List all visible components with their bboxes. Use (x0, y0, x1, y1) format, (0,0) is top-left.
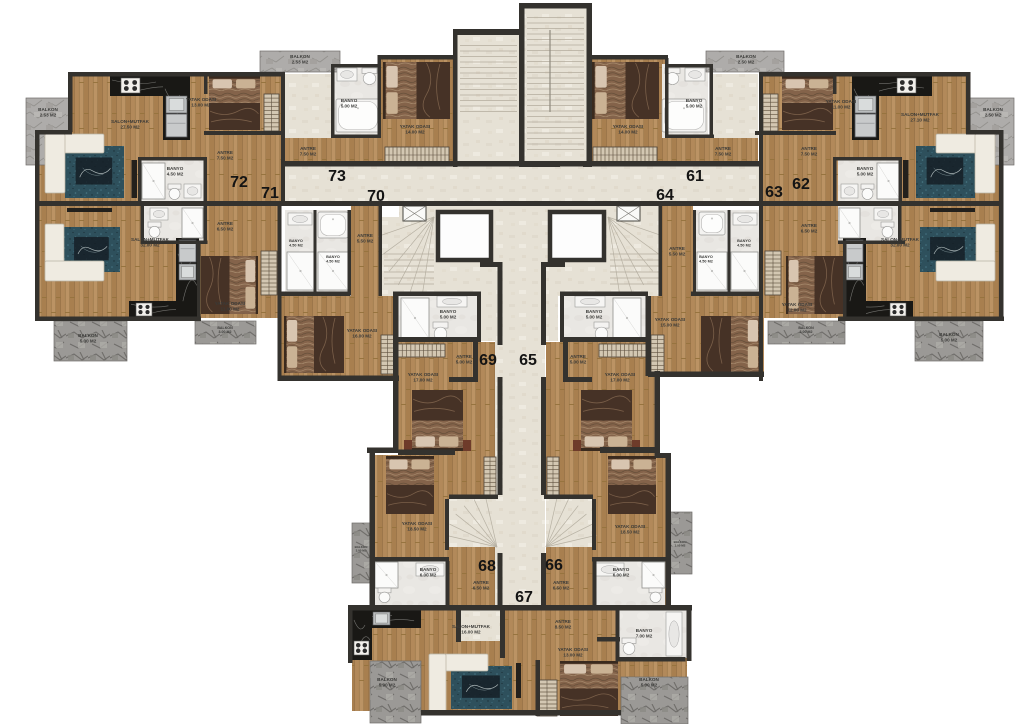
svg-text:YATAK ODASI: YATAK ODASI (826, 99, 857, 104)
svg-text:ANTRE: ANTRE (553, 580, 569, 585)
svg-text:BALKON: BALKON (78, 333, 98, 338)
svg-text:BANYO: BANYO (440, 309, 457, 314)
svg-text:32.00 M2: 32.00 M2 (890, 242, 910, 247)
svg-text:3.00 M2: 3.00 M2 (675, 544, 686, 548)
svg-text:73: 73 (328, 168, 346, 185)
svg-text:ANTRE: ANTRE (669, 246, 685, 251)
svg-text:YATAK ODASI: YATAK ODASI (558, 647, 589, 652)
svg-text:BANYO: BANYO (289, 239, 303, 243)
svg-text:27.10 M2: 27.10 M2 (910, 117, 930, 122)
svg-text:BANYO: BANYO (686, 98, 703, 103)
svg-text:BANYO: BANYO (737, 239, 751, 243)
svg-text:YATAK ODASI: YATAK ODASI (408, 372, 439, 377)
svg-text:4.50 M2: 4.50 M2 (699, 259, 713, 263)
svg-text:17.00 M2: 17.00 M2 (610, 377, 630, 382)
svg-text:YATAK ODASI: YATAK ODASI (655, 317, 686, 322)
svg-text:5.00 M2: 5.00 M2 (341, 103, 358, 108)
svg-text:BANYO: BANYO (857, 166, 874, 171)
svg-text:5.00 M2: 5.00 M2 (686, 103, 703, 108)
svg-text:BANYO: BANYO (420, 567, 437, 572)
svg-text:4.50 M2: 4.50 M2 (289, 243, 303, 247)
svg-text:11.00 M2: 11.00 M2 (832, 104, 851, 109)
svg-text:BANYO: BANYO (613, 567, 630, 572)
svg-text:2.53 M2: 2.53 M2 (292, 59, 309, 64)
svg-text:5.00 M2: 5.00 M2 (440, 314, 457, 319)
svg-text:ANTRE: ANTRE (801, 223, 817, 228)
svg-text:YATAK ODASI: YATAK ODASI (605, 372, 636, 377)
svg-text:5.00 M2: 5.00 M2 (456, 359, 473, 364)
svg-text:27.50 M2: 27.50 M2 (120, 124, 140, 129)
svg-text:16.00 M2: 16.00 M2 (352, 333, 372, 338)
svg-text:SALON+MUTFAK: SALON+MUTFAK (111, 119, 150, 124)
svg-text:ANTRE: ANTRE (300, 146, 316, 151)
svg-text:5.90 M2: 5.90 M2 (379, 682, 396, 687)
svg-text:BANYO: BANYO (167, 166, 184, 171)
svg-text:7.50 M2: 7.50 M2 (801, 151, 818, 156)
svg-text:68: 68 (478, 558, 496, 575)
svg-text:13.00 M2: 13.00 M2 (191, 102, 211, 107)
svg-text:SALON+MUTFAK: SALON+MUTFAK (131, 237, 170, 242)
svg-text:BANYO: BANYO (586, 309, 603, 314)
svg-text:ANTRE: ANTRE (473, 580, 489, 585)
svg-text:64: 64 (656, 187, 674, 204)
svg-text:13.00 M2: 13.00 M2 (563, 652, 583, 657)
svg-text:BALKON: BALKON (983, 107, 1003, 112)
svg-text:YATAK ODASI: YATAK ODASI (347, 328, 378, 333)
svg-text:5.50 M2: 5.50 M2 (357, 238, 374, 243)
svg-text:BALKON: BALKON (377, 677, 397, 682)
svg-text:18.50 M2: 18.50 M2 (407, 526, 427, 531)
svg-text:BALKON: BALKON (736, 54, 756, 59)
svg-text:69: 69 (479, 352, 497, 369)
svg-text:70: 70 (367, 188, 385, 205)
svg-text:ANTRE: ANTRE (570, 354, 586, 359)
svg-text:YATAK ODASI: YATAK ODASI (402, 521, 433, 526)
svg-text:5.50 M2: 5.50 M2 (669, 251, 686, 256)
svg-text:BALKON: BALKON (639, 677, 659, 682)
svg-text:6.50 M2: 6.50 M2 (553, 585, 570, 590)
svg-text:5.00 M2: 5.00 M2 (570, 359, 587, 364)
svg-text:ANTRE: ANTRE (555, 619, 571, 624)
svg-text:62: 62 (792, 176, 810, 193)
svg-text:BALKON: BALKON (38, 107, 58, 112)
svg-text:ANTRE: ANTRE (715, 146, 731, 151)
svg-text:6.50 M2: 6.50 M2 (801, 228, 818, 233)
svg-text:4.50 M2: 4.50 M2 (326, 259, 340, 263)
svg-text:15.00 M2: 15.00 M2 (660, 322, 680, 327)
svg-text:YATAK ODASI: YATAK ODASI (186, 97, 217, 102)
svg-text:8.50 M2: 8.50 M2 (555, 624, 572, 629)
svg-text:YATAK ODASI: YATAK ODASI (215, 301, 246, 306)
svg-text:SALON+MUTFAK: SALON+MUTFAK (901, 112, 940, 117)
svg-text:BALKON: BALKON (290, 54, 310, 59)
svg-text:6.00 M2: 6.00 M2 (420, 572, 437, 577)
svg-text:16.00 M2: 16.00 M2 (461, 629, 481, 634)
svg-text:ANTRE: ANTRE (456, 354, 472, 359)
svg-text:63: 63 (765, 184, 783, 201)
svg-text:18.50 M2: 18.50 M2 (620, 529, 640, 534)
svg-text:YATAK ODASI: YATAK ODASI (613, 124, 644, 129)
svg-text:SALON+MUTFAK: SALON+MUTFAK (881, 237, 920, 242)
svg-text:ANTRE: ANTRE (357, 233, 373, 238)
svg-text:ANTRE: ANTRE (217, 221, 233, 226)
svg-text:66: 66 (545, 557, 563, 574)
svg-text:SALON+MUTFAK: SALON+MUTFAK (452, 624, 491, 629)
svg-text:7.50 M2: 7.50 M2 (217, 155, 234, 160)
svg-text:7.50 M2: 7.50 M2 (300, 151, 317, 156)
svg-text:6.50 M2: 6.50 M2 (473, 585, 490, 590)
svg-text:YATAK ODASI: YATAK ODASI (615, 524, 646, 529)
svg-text:ANTRE: ANTRE (801, 146, 817, 151)
svg-text:BANYO: BANYO (326, 255, 340, 259)
svg-text:17.00 M2: 17.00 M2 (413, 377, 433, 382)
svg-text:3.00 M2: 3.00 M2 (219, 330, 232, 334)
svg-text:72: 72 (230, 174, 248, 191)
svg-text:2.50 M2: 2.50 M2 (985, 112, 1002, 117)
svg-text:ANTRE: ANTRE (217, 150, 233, 155)
svg-text:BALKON: BALKON (939, 332, 959, 337)
svg-text:YATAK ODASI: YATAK ODASI (400, 124, 431, 129)
svg-text:7.00 M2: 7.00 M2 (636, 633, 653, 638)
svg-text:YATAK ODASI: YATAK ODASI (782, 302, 813, 307)
svg-text:2.53 M2: 2.53 M2 (40, 112, 57, 117)
svg-text:5.00 M2: 5.00 M2 (80, 338, 97, 343)
svg-text:BANYO: BANYO (699, 255, 713, 259)
svg-text:2.50 M2: 2.50 M2 (738, 59, 755, 64)
svg-text:BANYO: BANYO (636, 628, 653, 633)
svg-text:5.00 M2: 5.00 M2 (857, 171, 874, 176)
svg-text:71: 71 (261, 185, 279, 202)
svg-text:67: 67 (515, 589, 533, 606)
svg-text:3.00 M2: 3.00 M2 (356, 549, 367, 553)
svg-text:BANYO: BANYO (341, 98, 358, 103)
svg-text:11.00 M2: 11.00 M2 (221, 306, 240, 311)
svg-text:4.50 M2: 4.50 M2 (167, 171, 184, 176)
svg-text:7.50 M2: 7.50 M2 (715, 151, 732, 156)
svg-text:5.00 M2: 5.00 M2 (941, 337, 958, 342)
svg-text:4.50 M2: 4.50 M2 (737, 243, 751, 247)
svg-text:6.00 M2: 6.00 M2 (613, 572, 630, 577)
svg-text:12.00 M2: 12.00 M2 (787, 307, 807, 312)
svg-text:65: 65 (519, 352, 537, 369)
svg-text:32.00 M2: 32.00 M2 (140, 242, 160, 247)
svg-text:61: 61 (686, 168, 704, 185)
svg-text:3.00 M2: 3.00 M2 (800, 330, 813, 334)
svg-text:14.00 M2: 14.00 M2 (405, 129, 425, 134)
svg-text:6.50 M2: 6.50 M2 (217, 226, 234, 231)
svg-text:5.00 M2: 5.00 M2 (641, 682, 658, 687)
svg-text:5.00 M2: 5.00 M2 (586, 314, 603, 319)
svg-text:14.00 M2: 14.00 M2 (618, 129, 638, 134)
